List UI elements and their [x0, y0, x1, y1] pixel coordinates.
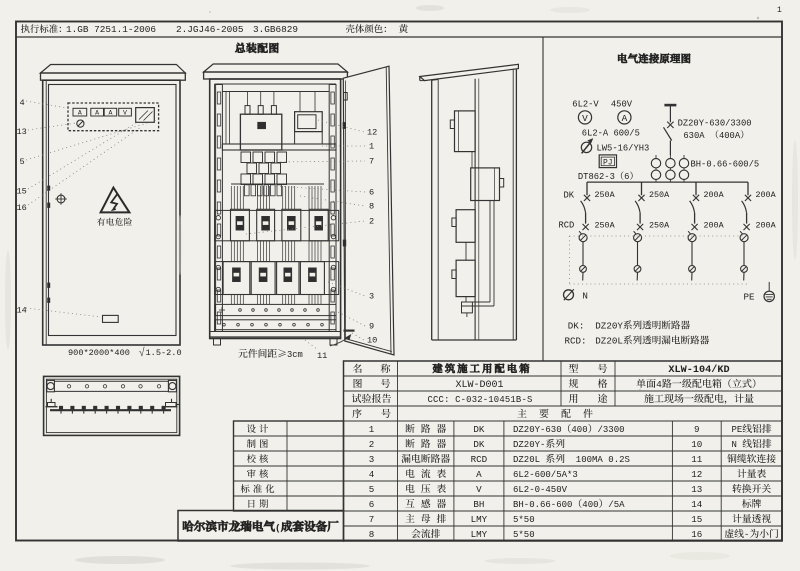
svg-text:DK:: DK: — [568, 321, 585, 332]
svg-text:0.2S: 0.2S — [608, 455, 630, 465]
svg-text:12: 12 — [691, 469, 702, 480]
svg-text:CCC: C-032-10451B-S: CCC: C-032-10451B-S — [428, 395, 533, 405]
svg-text:3.GB6829: 3.GB6829 — [253, 24, 298, 35]
svg-text:200A: 200A — [756, 190, 777, 200]
svg-text:3cm: 3cm — [287, 350, 303, 360]
svg-text:4: 4 — [656, 379, 662, 390]
svg-text:6: 6 — [369, 188, 374, 198]
svg-text:1: 1 — [369, 142, 374, 152]
svg-text:DZ20Y-: DZ20Y- — [513, 440, 545, 450]
svg-text:RCD: RCD — [559, 221, 575, 231]
svg-text:/3300: /3300 — [598, 425, 625, 435]
svg-text:DZ20Y-630: DZ20Y-630 — [513, 425, 562, 435]
svg-text:DZ20L: DZ20L — [513, 455, 540, 465]
svg-text:6: 6 — [624, 172, 629, 182]
svg-text:-: - — [744, 530, 749, 540]
svg-text:2: 2 — [369, 439, 375, 450]
svg-text:A: A — [95, 110, 99, 117]
svg-text:250A: 250A — [595, 220, 616, 230]
svg-text:/5A: /5A — [608, 500, 625, 510]
svg-text:XLW-D001: XLW-D001 — [455, 380, 503, 391]
svg-text:N: N — [732, 440, 737, 450]
svg-text:250A: 250A — [649, 190, 670, 200]
svg-text:11: 11 — [691, 454, 703, 465]
svg-text:LMY: LMY — [471, 514, 488, 525]
svg-text:250A: 250A — [649, 220, 670, 230]
svg-text:200A: 200A — [704, 220, 725, 230]
svg-text:PE: PE — [732, 425, 743, 435]
svg-text:7: 7 — [369, 157, 374, 167]
svg-text:16: 16 — [17, 203, 27, 213]
svg-text:LMY: LMY — [471, 529, 488, 540]
svg-text:6L2-A 600/5: 6L2-A 600/5 — [582, 128, 640, 138]
svg-text:11: 11 — [317, 351, 327, 361]
svg-text:A: A — [78, 110, 82, 117]
svg-text:LW5-16/YH3: LW5-16/YH3 — [597, 144, 650, 154]
svg-text:DZ20L: DZ20L — [595, 336, 623, 347]
svg-text:400A: 400A — [719, 131, 741, 141]
svg-text:630A: 630A — [683, 131, 705, 141]
svg-text:XLW-104/KD: XLW-104/KD — [668, 364, 729, 376]
svg-text:3: 3 — [369, 454, 375, 465]
svg-text:14: 14 — [691, 499, 703, 510]
svg-text:15: 15 — [691, 514, 702, 525]
svg-text:1: 1 — [777, 6, 782, 15]
svg-text:13: 13 — [691, 484, 702, 495]
svg-text:14: 14 — [17, 306, 27, 316]
svg-text:10: 10 — [367, 336, 377, 346]
svg-text:8: 8 — [369, 529, 375, 540]
svg-text:PE: PE — [744, 292, 756, 303]
svg-text:2.JGJ46-2005: 2.JGJ46-2005 — [176, 24, 244, 35]
svg-text:9: 9 — [694, 424, 700, 435]
svg-text:15: 15 — [17, 187, 27, 197]
svg-text:BH-0.66-600: BH-0.66-600 — [513, 500, 572, 510]
svg-text:1: 1 — [369, 424, 375, 435]
svg-text:DT862-3: DT862-3 — [578, 172, 615, 182]
svg-text:V: V — [476, 484, 482, 495]
svg-text:8: 8 — [369, 202, 374, 212]
svg-text:BH: BH — [473, 499, 484, 510]
svg-text:A: A — [622, 113, 628, 124]
svg-text:3: 3 — [369, 292, 374, 302]
svg-text:13: 13 — [17, 127, 27, 137]
svg-text:400: 400 — [571, 425, 587, 435]
svg-text:DZ20Y: DZ20Y — [595, 321, 623, 332]
svg-text:6L2-0-450V: 6L2-0-450V — [513, 485, 568, 495]
svg-text:V: V — [123, 110, 127, 117]
svg-text:V: V — [582, 113, 588, 124]
svg-text:(: ( — [275, 523, 281, 534]
svg-text:6L2-600/5A*3: 6L2-600/5A*3 — [513, 470, 578, 480]
svg-text:250A: 250A — [595, 190, 616, 200]
svg-text:2: 2 — [369, 217, 374, 227]
svg-text:DK: DK — [473, 439, 485, 450]
svg-text:4: 4 — [369, 469, 375, 480]
svg-text:DK: DK — [473, 424, 485, 435]
svg-text:DZ20Y-630/3300: DZ20Y-630/3300 — [678, 119, 752, 129]
svg-text:200A: 200A — [756, 220, 777, 230]
svg-text:1.5-2.0: 1.5-2.0 — [146, 348, 182, 358]
svg-text:16: 16 — [691, 529, 702, 540]
svg-text:5: 5 — [369, 484, 375, 495]
svg-text:5*50: 5*50 — [513, 530, 535, 540]
svg-text:DK: DK — [564, 191, 575, 201]
svg-text:6: 6 — [369, 499, 375, 510]
svg-text:PJ: PJ — [603, 159, 613, 168]
svg-text:900*2000*400: 900*2000*400 — [68, 348, 130, 358]
svg-text:N: N — [582, 291, 588, 302]
svg-text:200A: 200A — [704, 190, 725, 200]
svg-text:6L2-V: 6L2-V — [572, 100, 599, 110]
svg-text:10: 10 — [691, 439, 702, 450]
svg-text:5: 5 — [20, 157, 25, 167]
svg-text:9: 9 — [369, 322, 374, 332]
svg-text:RCD: RCD — [471, 454, 488, 465]
svg-text:5*50: 5*50 — [513, 515, 535, 525]
svg-text:450V: 450V — [611, 100, 633, 110]
svg-text:1.GB 7251.1-2006: 1.GB 7251.1-2006 — [66, 24, 156, 35]
svg-text:7: 7 — [369, 514, 375, 525]
svg-text:100MA: 100MA — [576, 455, 604, 465]
svg-text:400: 400 — [582, 500, 598, 510]
svg-text:12: 12 — [367, 128, 377, 138]
svg-text:RCD:: RCD: — [565, 336, 587, 347]
svg-text:BH-0.66-600/5: BH-0.66-600/5 — [691, 160, 760, 170]
svg-text:A: A — [108, 110, 112, 117]
svg-text:4: 4 — [20, 98, 25, 108]
svg-text:A: A — [476, 469, 482, 480]
